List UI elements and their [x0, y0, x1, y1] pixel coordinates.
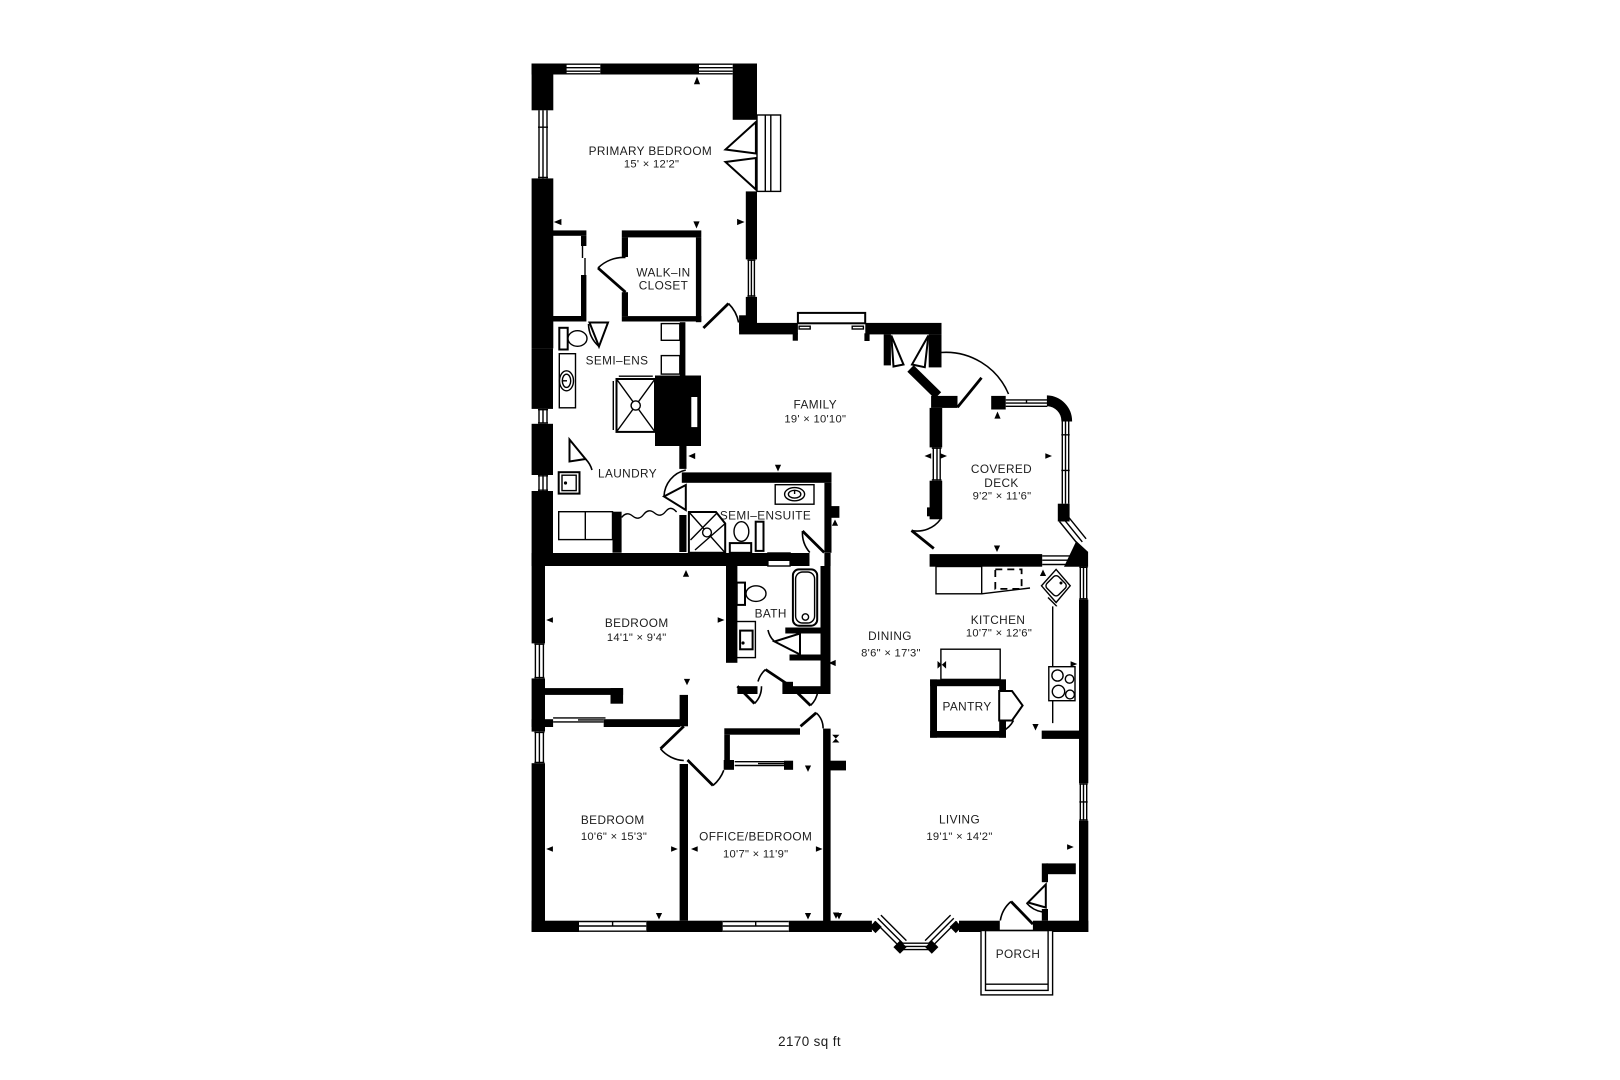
svg-text:19' × 10'10": 19' × 10'10": [784, 413, 846, 425]
svg-text:COVERED: COVERED: [971, 462, 1032, 476]
svg-text:CLOSET: CLOSET: [639, 279, 689, 293]
svg-text:BATH: BATH: [755, 606, 787, 620]
svg-text:LIVING: LIVING: [939, 812, 980, 826]
svg-text:PRIMARY BEDROOM: PRIMARY BEDROOM: [589, 144, 713, 158]
svg-text:LAUNDRY: LAUNDRY: [598, 467, 657, 481]
svg-text:BEDROOM: BEDROOM: [581, 813, 645, 827]
svg-text:PORCH: PORCH: [996, 947, 1041, 961]
svg-text:9'2" × 11'6": 9'2" × 11'6": [973, 491, 1032, 503]
svg-text:10'7" × 12'6": 10'7" × 12'6": [966, 628, 1032, 640]
svg-text:15' × 12'2": 15' × 12'2": [624, 158, 679, 170]
svg-text:SEMI–ENSUITE: SEMI–ENSUITE: [720, 509, 811, 523]
svg-text:FAMILY: FAMILY: [794, 397, 837, 411]
svg-text:2170 sq ft: 2170 sq ft: [778, 1034, 841, 1049]
svg-text:19'1" × 14'2": 19'1" × 14'2": [926, 831, 992, 843]
svg-text:KITCHEN: KITCHEN: [971, 613, 1026, 627]
svg-text:OFFICE/BEDROOM: OFFICE/BEDROOM: [699, 830, 812, 844]
svg-text:14'1" × 9'4": 14'1" × 9'4": [607, 632, 667, 644]
svg-text:DECK: DECK: [984, 476, 1018, 490]
svg-text:PANTRY: PANTRY: [943, 699, 992, 713]
svg-text:WALK–IN: WALK–IN: [636, 266, 690, 280]
svg-text:10'6" × 15'3": 10'6" × 15'3": [581, 831, 647, 843]
svg-text:SEMI–ENS: SEMI–ENS: [586, 354, 649, 368]
svg-text:10'7" × 11'9": 10'7" × 11'9": [723, 848, 788, 860]
svg-text:DINING: DINING: [868, 629, 912, 643]
svg-text:BEDROOM: BEDROOM: [605, 616, 669, 630]
svg-text:8'6" × 17'3": 8'6" × 17'3": [861, 647, 921, 659]
